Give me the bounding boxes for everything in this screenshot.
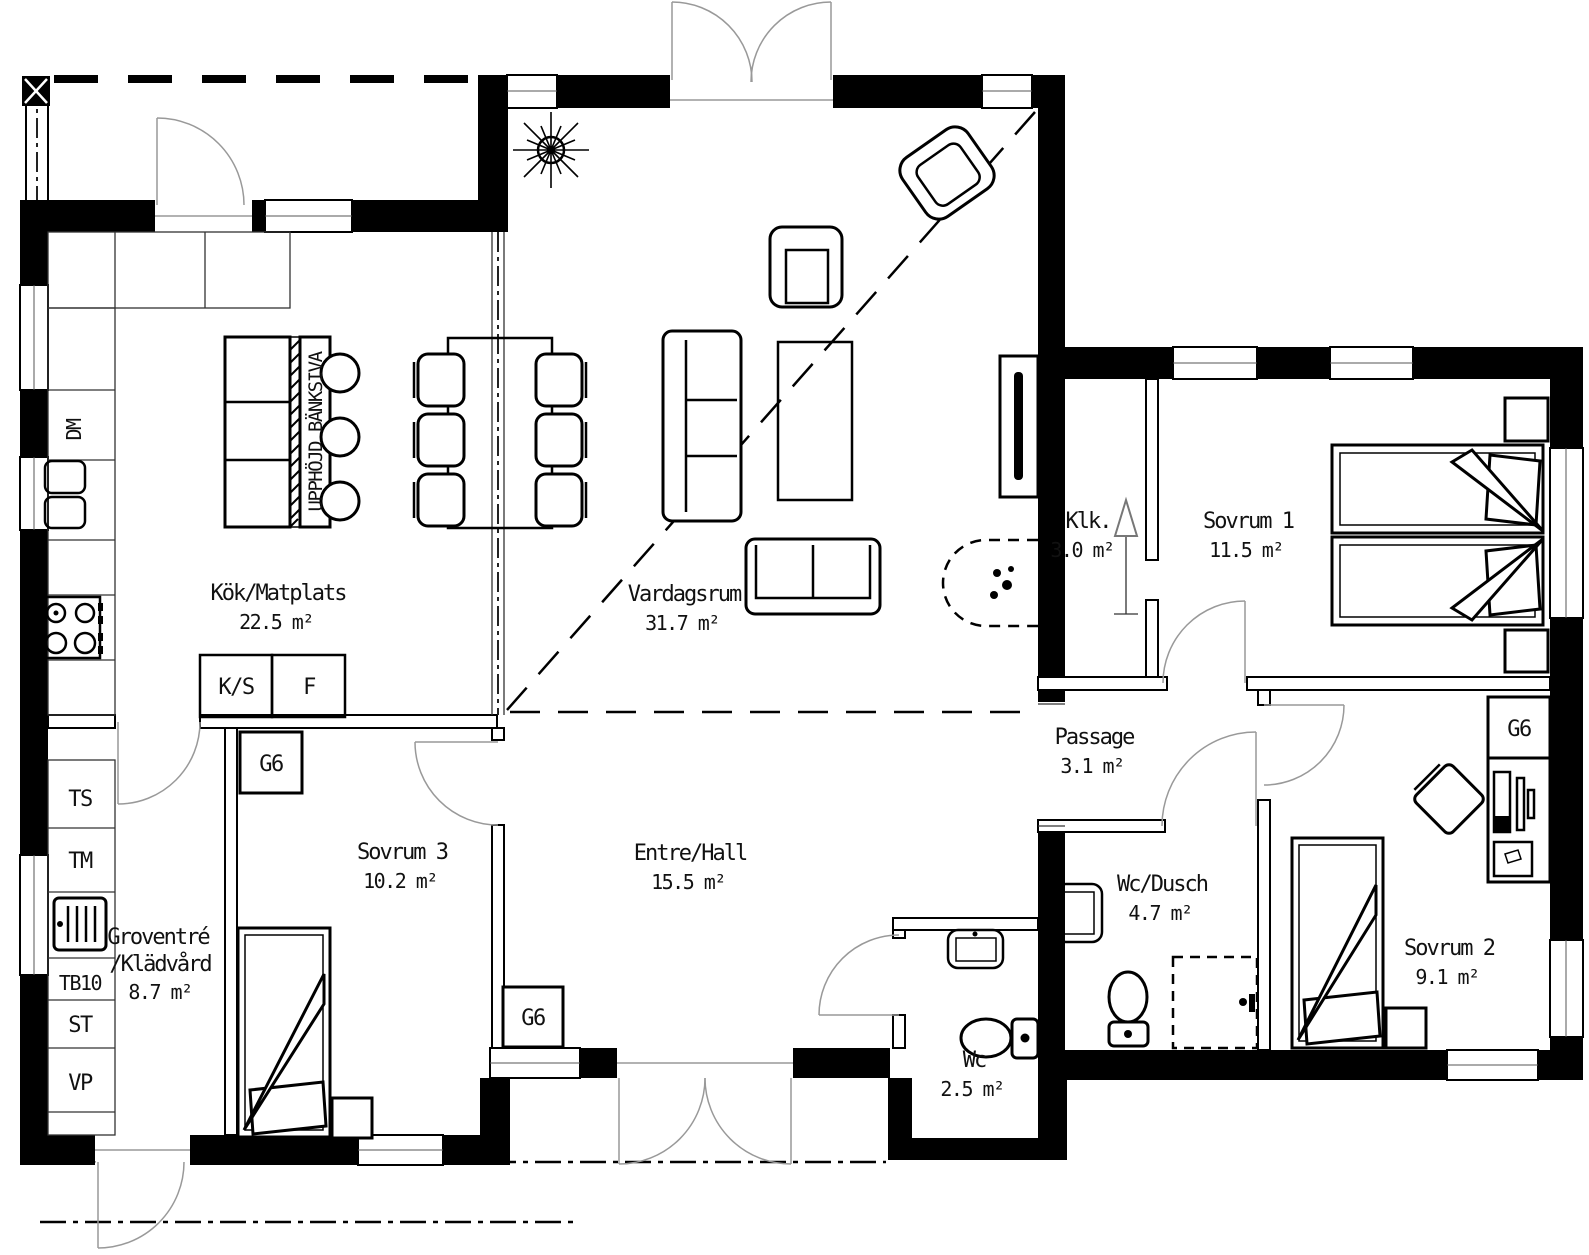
floor-plan: Kök/Matplats 22.5 m² Vardagsrum 31.7 m² … <box>0 0 1589 1255</box>
partition <box>48 715 115 728</box>
wall <box>1538 1050 1583 1080</box>
room-name: Entre/Hall <box>634 841 747 866</box>
partition <box>893 1015 905 1048</box>
room-area: 2.5 m² <box>940 1077 1003 1101</box>
vp-label: VP <box>68 1071 93 1096</box>
room-name: Sovrum 3 <box>357 840 448 865</box>
room-name: Groventré <box>107 925 209 950</box>
desk <box>1488 758 1550 882</box>
room-name: Kök/Matplats <box>211 581 347 606</box>
partition <box>1258 800 1270 1050</box>
window <box>982 75 1032 108</box>
window <box>1447 1050 1538 1080</box>
room-area: 4.7 m² <box>1128 901 1191 925</box>
window <box>1550 448 1583 618</box>
wall <box>352 200 497 232</box>
room-area: 31.7 m² <box>645 611 719 635</box>
fridge-label: K/S <box>218 675 253 700</box>
room-name: Vardagsrum <box>628 582 742 607</box>
st-label: ST <box>68 1013 93 1038</box>
window <box>490 1048 580 1078</box>
window <box>20 855 48 975</box>
wall <box>1413 347 1583 379</box>
room-name: Passage <box>1055 725 1134 750</box>
wall <box>252 200 265 232</box>
dining-chair <box>414 354 464 406</box>
wall <box>1257 347 1330 379</box>
room-name: Klk. <box>1066 509 1111 534</box>
wall <box>580 1048 617 1078</box>
sofa-small <box>746 539 880 614</box>
single-bed <box>238 928 330 1137</box>
wardrobe-label: G6 <box>1507 717 1531 742</box>
floor-plan-svg: Kök/Matplats 22.5 m² Vardagsrum 31.7 m² … <box>0 0 1589 1255</box>
window <box>1550 940 1583 1037</box>
wall <box>20 390 48 457</box>
ts-label: TS <box>68 787 92 812</box>
partition <box>1038 677 1167 690</box>
room-area: 10.2 m² <box>363 869 437 893</box>
wardrobe-label: G6 <box>259 752 283 777</box>
tm-label: TM <box>68 849 93 874</box>
partition <box>893 918 1038 930</box>
wall <box>20 200 155 232</box>
wall <box>1550 618 1583 940</box>
dishwasher-label: DM <box>62 418 86 441</box>
dining-chair <box>536 414 586 466</box>
wall <box>20 232 48 285</box>
water-heater-icon <box>54 898 106 950</box>
sofa-large <box>663 331 741 521</box>
wall <box>793 1048 890 1078</box>
room-name: /Klädvård <box>109 951 211 977</box>
room-area: 11.5 m² <box>1209 538 1283 562</box>
dining-chair <box>414 414 464 466</box>
partition <box>1146 379 1158 560</box>
tv-bench <box>1000 356 1038 497</box>
wall <box>20 530 48 855</box>
nightstand <box>332 1098 372 1138</box>
island-note-label: UPPHÖJD BÄNKSIVA <box>304 350 327 511</box>
wardrobe-label: G6 <box>521 1006 545 1031</box>
wall <box>1038 75 1065 702</box>
room-area: 22.5 m² <box>239 610 313 634</box>
wall <box>888 1078 912 1140</box>
partition <box>1247 677 1550 690</box>
wall <box>480 1078 510 1165</box>
wall <box>1038 347 1173 379</box>
plant-icon <box>513 112 589 188</box>
wall <box>557 75 670 108</box>
room-area: 9.1 m² <box>1415 965 1478 989</box>
wall <box>478 75 507 108</box>
wall <box>1550 379 1583 448</box>
room-name: Sovrum 2 <box>1404 936 1495 961</box>
window <box>1330 347 1413 379</box>
window <box>507 75 557 108</box>
dining-chair <box>536 474 586 526</box>
wall <box>833 75 982 108</box>
wall <box>20 1135 95 1165</box>
window <box>20 285 48 390</box>
window <box>265 200 352 232</box>
partition <box>225 728 237 1135</box>
room-area: 8.7 m² <box>128 980 191 1004</box>
partition <box>893 930 905 938</box>
dining-chair <box>536 354 586 406</box>
room-area: 15.5 m² <box>651 870 725 894</box>
toilet-icon <box>1109 972 1148 1046</box>
armchair-square <box>770 227 842 307</box>
room-name: Wc/Dusch <box>1117 872 1208 897</box>
nightstand <box>1505 630 1548 672</box>
wall <box>20 975 48 1135</box>
room-area: 3.1 m² <box>1060 754 1123 778</box>
single-bed <box>1292 838 1383 1048</box>
partition <box>492 728 504 740</box>
room-name: Wc <box>963 1048 986 1073</box>
partition <box>1258 690 1270 705</box>
room-area: 3.0 m² <box>1050 538 1113 562</box>
tb10-label: TB10 <box>59 971 102 995</box>
wall <box>1053 1050 1447 1080</box>
room-name: Sovrum 1 <box>1203 509 1294 534</box>
window <box>1173 347 1257 379</box>
nightstand <box>1505 398 1548 441</box>
dining-chair <box>414 474 464 526</box>
freezer-label: F <box>303 675 315 700</box>
nightstand <box>1386 1008 1426 1048</box>
